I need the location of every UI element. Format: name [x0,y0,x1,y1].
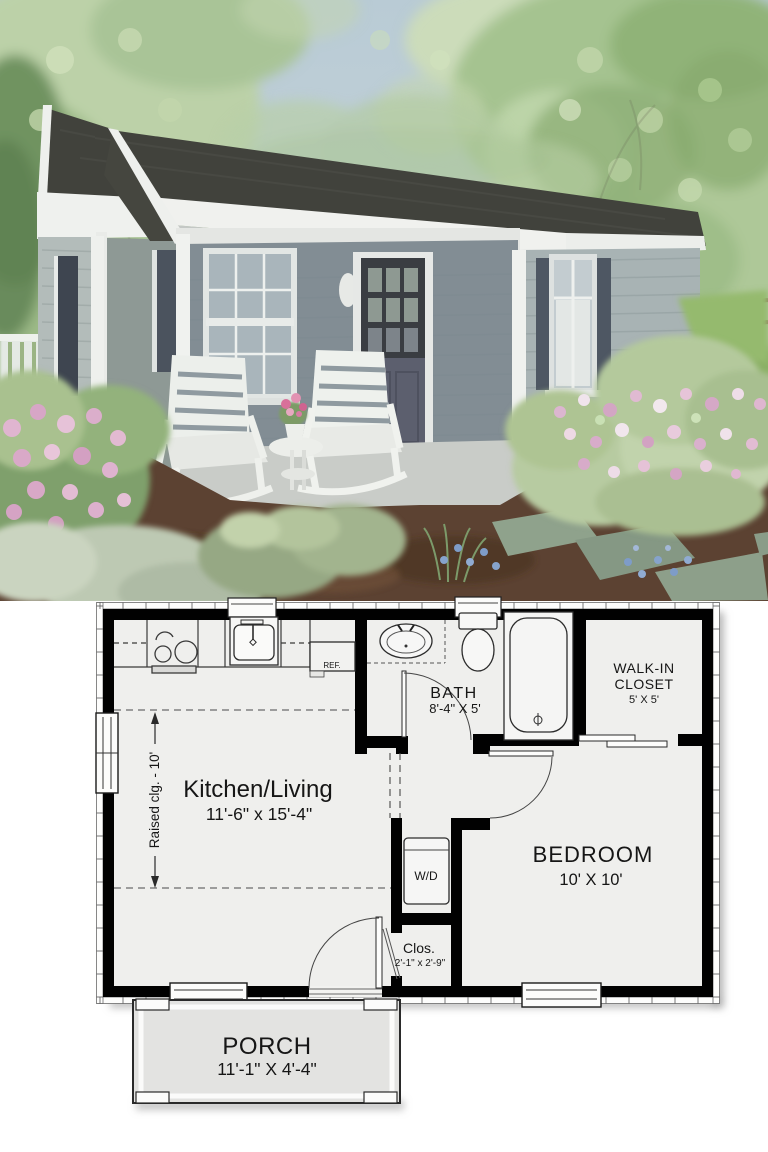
svg-text:11'-6" x 15'-4": 11'-6" x 15'-4" [206,804,312,824]
svg-text:BEDROOM: BEDROOM [533,842,654,867]
svg-text:BATH: BATH [430,685,477,702]
svg-text:8'-4" X 5': 8'-4" X 5' [429,701,481,716]
svg-text:10' X 10': 10' X 10' [559,871,622,889]
svg-text:5' X 5': 5' X 5' [629,694,659,706]
svg-text:W/D: W/D [414,869,438,883]
svg-text:WALK-IN: WALK-IN [613,660,674,676]
svg-text:PORCH: PORCH [222,1033,311,1060]
svg-text:Clos.: Clos. [403,940,435,956]
svg-text:REF.: REF. [323,661,340,670]
svg-text:11'-1" X 4'-4": 11'-1" X 4'-4" [217,1059,317,1079]
svg-text:CLOSET: CLOSET [614,676,673,692]
svg-text:Kitchen/Living: Kitchen/Living [183,776,332,803]
svg-text:2'-1" x 2'-9": 2'-1" x 2'-9" [395,958,446,969]
svg-text:Raised clg. - 10': Raised clg. - 10' [147,752,162,848]
